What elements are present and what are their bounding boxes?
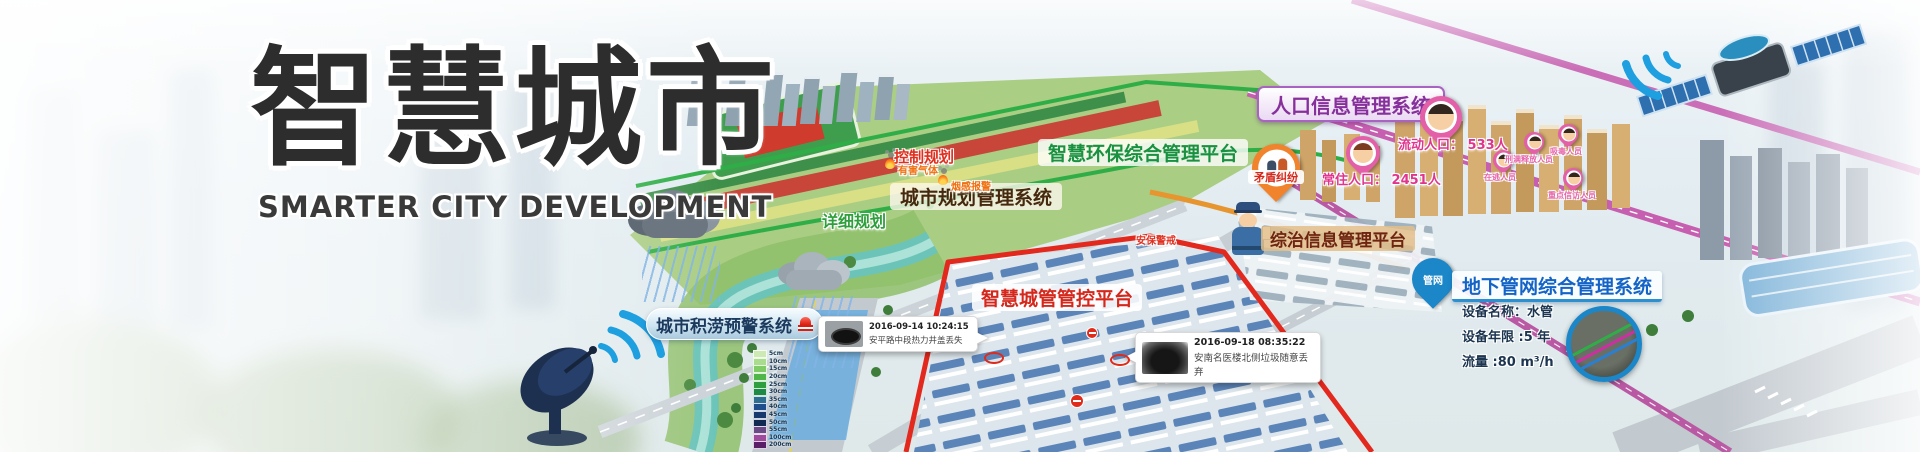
legend-row: 45cm — [753, 412, 791, 419]
pipeline-flow: 流量 :80 m³/h — [1462, 351, 1554, 370]
legend-row: 30cm — [753, 389, 791, 396]
event-desc: 安南名医楼北侧垃圾随意丢弃 — [1194, 350, 1314, 378]
no-entry-sign — [1086, 327, 1098, 339]
pipeline-device-name: 设备名称：水管 — [1462, 301, 1554, 320]
fire-icon — [885, 156, 895, 169]
pipeline-device-age: 设备年限 :5 年 — [1462, 326, 1554, 345]
flood-warning-system-text: 城市积涝预警系统 — [656, 312, 792, 337]
person-tag: 重点信访人员 — [1548, 190, 1596, 201]
city-mgmt-platform-label[interactable]: 智慧城管管控平台 — [972, 284, 1142, 311]
pipeline-info: 设备名称：水管 设备年限 :5 年 流量 :80 m³/h — [1462, 301, 1554, 370]
incident-marker — [1110, 354, 1130, 366]
siren-icon — [798, 317, 813, 332]
gas-alert-tag: 有害气体 — [898, 162, 938, 177]
event-callout-manhole: 2016-09-14 10:24:15 安平路中段热力井盖丢失 — [818, 316, 978, 352]
population-system-label[interactable]: 人口信息管理系统 — [1257, 86, 1445, 122]
person-pin[interactable] — [1563, 168, 1583, 188]
person-tag: 刑满释放人员 — [1505, 154, 1553, 165]
banner-subtitle: SMARTER CITY DEVELOPMENT — [258, 190, 772, 224]
dispute-pin[interactable]: 矛盾纠纷 — [1252, 144, 1300, 192]
legend-row: 55cm — [753, 427, 791, 434]
event-time: 2016-09-18 08:35:22 — [1194, 337, 1314, 348]
legend-row: 50cm — [753, 419, 791, 426]
pipe-pin-text: 管网 — [1423, 272, 1443, 287]
smart-city-banner: 智慧城市 SMARTER CITY DEVELOPMENT — [0, 0, 1920, 452]
flood-depth-legend: 5cm 10cm 15cm 20cm 25cm 30cm 35cm 40cm 4… — [753, 351, 791, 449]
incident-marker — [984, 352, 1004, 364]
security-cordon-tag: 安保警戒 — [1136, 232, 1176, 247]
pipe-network-pin[interactable]: 管网 — [1412, 258, 1454, 300]
legend-row: 5cm — [753, 351, 791, 358]
floating-population-pin[interactable] — [1420, 96, 1462, 138]
resident-population-pin[interactable] — [1346, 136, 1380, 170]
fire-icon — [938, 172, 948, 185]
resident-population-label: 常住人口： 2451人 — [1322, 169, 1441, 188]
legend-row: 200cm — [753, 442, 791, 449]
dispute-label: 矛盾纠纷 — [1248, 170, 1304, 184]
callout-pointer — [976, 332, 988, 344]
env-platform-label[interactable]: 智慧环保综合管理平台 — [1038, 139, 1248, 166]
floating-population-label: 流动人口： 533人 — [1398, 134, 1508, 153]
person-pin[interactable] — [1524, 132, 1544, 152]
legend-row: 15cm — [753, 366, 791, 373]
person-pin[interactable] — [1558, 124, 1578, 144]
pipeline-inset-photo — [1566, 306, 1642, 382]
legend-row: 25cm — [753, 381, 791, 388]
pipeline-system-label[interactable]: 地下管网综合管理系统 — [1452, 271, 1662, 302]
smoke-alert-tag: 烟感报警 — [951, 178, 991, 193]
event-desc: 安平路中段热力井盖丢失 — [869, 334, 969, 346]
legend-row: 40cm — [753, 404, 791, 411]
legend-row: 20cm — [753, 374, 791, 381]
woman-avatar — [1353, 143, 1374, 164]
detail-plan-tag: 详细规划 — [822, 208, 886, 232]
pipeline-system-text: 地下管网综合管理系统 — [1462, 272, 1652, 299]
manhole-photo — [825, 321, 863, 347]
no-entry-sign — [1070, 394, 1084, 408]
boy-avatar — [1428, 104, 1454, 130]
rain-cloud-icon — [778, 250, 852, 294]
zongzhi-platform-label[interactable]: 综治信息管理平台 — [1261, 226, 1415, 251]
population-system-text: 人口信息管理系统 — [1271, 90, 1431, 119]
event-time: 2016-09-14 10:24:15 — [869, 322, 969, 332]
satellite-dish-icon — [505, 268, 695, 452]
banner-title: 智慧城市 — [250, 40, 778, 181]
person-tag: 在逃人员 — [1484, 172, 1516, 183]
satellite-icon — [1590, 0, 1920, 130]
city-mgmt-platform-text: 智慧城管管控平台 — [981, 284, 1133, 311]
garbage-photo — [1142, 342, 1188, 374]
env-platform-text: 智慧环保综合管理平台 — [1048, 139, 1238, 166]
person-tag: 吸毒人员 — [1550, 146, 1582, 157]
flood-warning-system-label[interactable]: 城市积涝预警系统 — [646, 308, 823, 340]
event-callout-garbage: 2016-09-18 08:35:22 安南名医楼北侧垃圾随意丢弃 — [1135, 332, 1321, 383]
zongzhi-platform-text: 综治信息管理平台 — [1270, 226, 1406, 251]
